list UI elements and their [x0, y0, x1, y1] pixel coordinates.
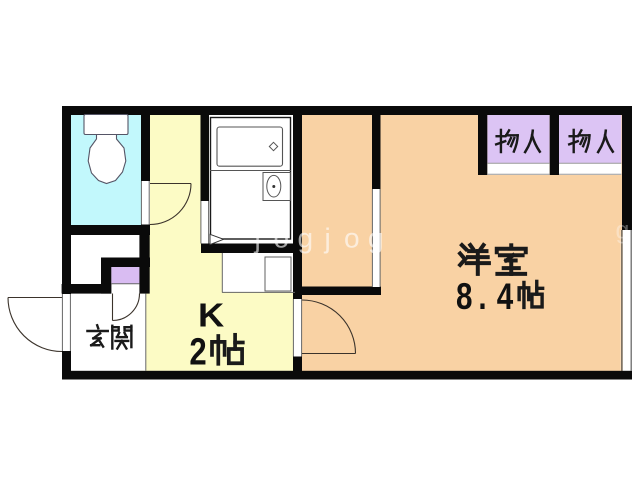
- svg-text:o: o: [274, 223, 290, 254]
- svg-text:o: o: [344, 223, 360, 254]
- svg-text:g: g: [616, 217, 630, 245]
- svg-text:4: 4: [497, 277, 514, 318]
- svg-text:j: j: [324, 223, 331, 254]
- svg-text:g: g: [368, 223, 384, 254]
- svg-text:K: K: [198, 298, 224, 334]
- svg-text:8: 8: [456, 277, 472, 318]
- svg-text:j: j: [254, 223, 261, 254]
- svg-text:g: g: [298, 223, 314, 254]
- svg-text:.: .: [478, 277, 486, 318]
- svg-text:2: 2: [189, 332, 206, 374]
